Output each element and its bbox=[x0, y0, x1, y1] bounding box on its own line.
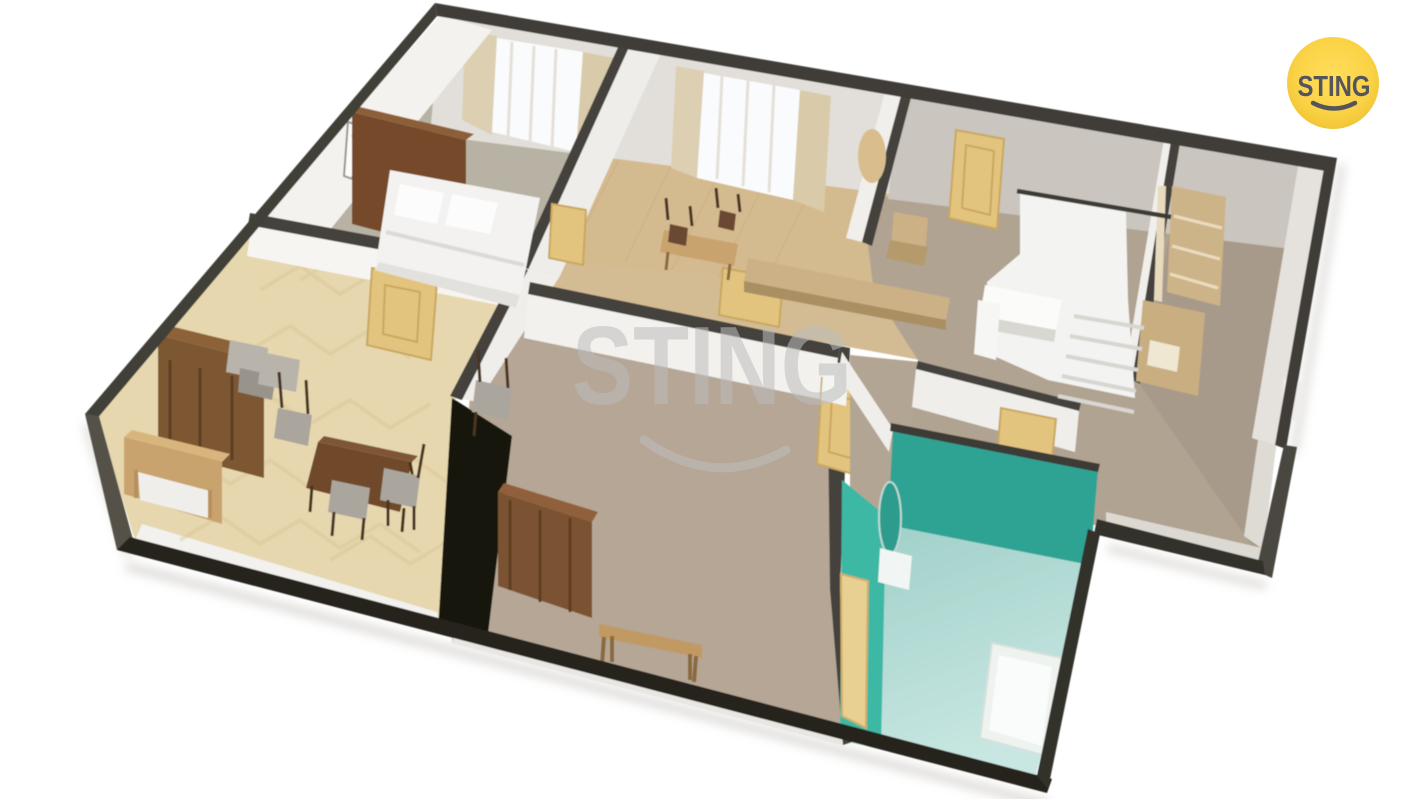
svg-text:STING: STING bbox=[1298, 71, 1371, 103]
svg-text:STING: STING bbox=[572, 304, 852, 428]
